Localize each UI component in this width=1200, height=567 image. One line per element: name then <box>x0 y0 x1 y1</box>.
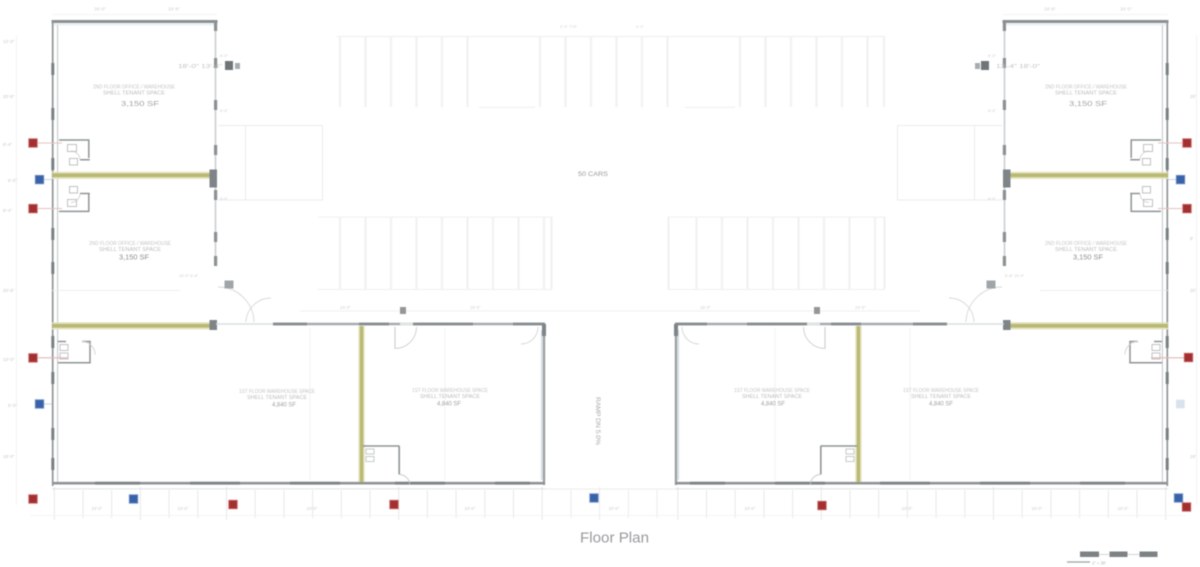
svg-text:RAMP DN 5.0%: RAMP DN 5.0% <box>594 397 600 446</box>
svg-text:8'-4": 8'-4" <box>3 208 12 213</box>
svg-text:SHELL TENANT SPACE: SHELL TENANT SPACE <box>1055 247 1118 253</box>
svg-text:10'-0": 10'-0" <box>3 357 15 362</box>
svg-text:9'-0": 9'-0" <box>636 24 645 29</box>
svg-text:4,840 SF: 4,840 SF <box>929 401 953 408</box>
svg-text:20'-0": 20'-0" <box>609 506 620 511</box>
svg-text:34'-0": 34'-0" <box>94 7 106 12</box>
svg-text:8'-0": 8'-0" <box>220 108 229 113</box>
svg-text:SHELL TENANT SPACE: SHELL TENANT SPACE <box>99 247 162 253</box>
svg-text:3,150 SF: 3,150 SF <box>121 101 159 108</box>
svg-text:24'-0": 24'-0" <box>340 305 351 310</box>
svg-text:24'-8": 24'-8" <box>168 7 180 12</box>
svg-text:18'-0": 18'-0" <box>470 305 481 310</box>
svg-text:4,840 SF: 4,840 SF <box>761 401 785 408</box>
svg-text:12'-0": 12'-0" <box>3 39 15 44</box>
svg-text:SHELL TENANT SPACE: SHELL TENANT SPACE <box>742 394 803 400</box>
svg-text:13'-4" 18'-0": 13'-4" 18'-0" <box>996 64 1040 70</box>
svg-text:8'-0": 8'-0" <box>220 53 229 58</box>
svg-text:6'-0": 6'-0" <box>8 178 17 183</box>
svg-text:24'-0": 24'-0" <box>855 305 866 310</box>
svg-text:Floor Plan: Floor Plan <box>580 530 649 547</box>
svg-text:9'-0" TYP: 9'-0" TYP <box>560 24 577 29</box>
svg-text:18'-0": 18'-0" <box>700 305 711 310</box>
svg-text:SHELL TENANT SPACE: SHELL TENANT SPACE <box>911 394 972 400</box>
svg-text:18'-0" 13'-4": 18'-0" 13'-4" <box>178 64 222 70</box>
svg-text:3,150 SF: 3,150 SF <box>119 255 149 262</box>
svg-text:SHELL TENANT SPACE: SHELL TENANT SPACE <box>1055 91 1118 97</box>
svg-text:20'-6": 20'-6" <box>3 288 15 293</box>
svg-text:18'-0": 18'-0" <box>3 454 15 459</box>
svg-text:SHELL TENANT SPACE: SHELL TENANT SPACE <box>103 91 166 97</box>
svg-text:4,840 SF: 4,840 SF <box>272 402 296 409</box>
svg-text:8'-4": 8'-4" <box>3 142 12 147</box>
svg-text:20'-6": 20'-6" <box>3 94 15 99</box>
svg-text:6'-8" 10'-0": 6'-8" 10'-0" <box>1005 273 1025 278</box>
svg-text:10'-0" 6'-8": 10'-0" 6'-8" <box>179 273 199 278</box>
svg-text:24'-8": 24'-8" <box>1044 7 1056 12</box>
svg-text:8': 8' <box>1190 236 1194 241</box>
svg-text:24'-0": 24'-0" <box>902 506 913 511</box>
svg-text:8'-0": 8'-0" <box>988 53 997 58</box>
svg-text:8'-0": 8'-0" <box>220 196 229 201</box>
svg-text:20': 20' <box>1190 288 1196 293</box>
svg-text:SHELL TENANT SPACE: SHELL TENANT SPACE <box>247 395 308 401</box>
svg-text:24'-0": 24'-0" <box>465 506 476 511</box>
svg-text:3,150 SF: 3,150 SF <box>1073 255 1103 262</box>
svg-text:1" = 30': 1" = 30' <box>1092 561 1106 566</box>
svg-text:20': 20' <box>1190 94 1196 99</box>
svg-text:24'-0": 24'-0" <box>1032 506 1043 511</box>
svg-text:3,150 SF: 3,150 SF <box>1069 101 1107 108</box>
svg-text:18': 18' <box>1190 454 1196 459</box>
svg-text:8'-0": 8'-0" <box>988 196 997 201</box>
svg-text:24'-0": 24'-0" <box>92 506 103 511</box>
svg-text:24'-0": 24'-0" <box>178 506 189 511</box>
svg-text:50 CARS: 50 CARS <box>578 171 609 178</box>
svg-text:SHELL TENANT SPACE: SHELL TENANT SPACE <box>420 394 481 400</box>
svg-text:24'-0": 24'-0" <box>307 506 318 511</box>
svg-text:24'-0": 24'-0" <box>1118 506 1129 511</box>
svg-text:8'-0": 8'-0" <box>988 108 997 113</box>
svg-text:6'-0": 6'-0" <box>8 403 17 408</box>
svg-text:34'-0": 34'-0" <box>1120 7 1132 12</box>
svg-text:4,840 SF: 4,840 SF <box>437 401 461 408</box>
svg-text:24'-0": 24'-0" <box>745 506 756 511</box>
